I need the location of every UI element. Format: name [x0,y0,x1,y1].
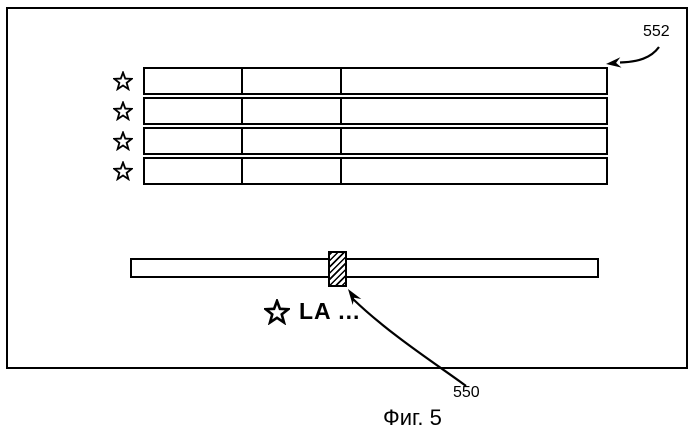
star-icon [113,101,133,121]
star-icon [113,161,133,181]
table-cell[interactable] [243,159,342,183]
ref-label-550: 550 [453,385,480,401]
table-cell[interactable] [243,99,342,123]
row-favorite-star[interactable] [107,67,139,95]
table-cell[interactable] [243,69,342,93]
table-cell[interactable] [145,129,243,153]
star-icon [264,299,290,325]
now-playing-label: LA ... [264,298,360,325]
table-cell[interactable] [342,99,606,123]
figure-5-patent-drawing: LA ... 552 550 Фиг. 5 [0,0,698,438]
favorites-star-column [107,67,139,185]
ref-label-552: 552 [643,24,670,40]
star-icon [113,131,133,151]
table-cell[interactable] [145,69,243,93]
table-cell[interactable] [342,69,606,93]
now-playing-text: LA ... [299,298,360,325]
table-row[interactable] [143,67,608,95]
table-cell[interactable] [145,159,243,183]
table-cell[interactable] [243,129,342,153]
media-list-table[interactable] [143,67,608,185]
row-favorite-star[interactable] [107,157,139,185]
table-row[interactable] [143,127,608,155]
row-favorite-star[interactable] [107,97,139,125]
table-row[interactable] [143,97,608,125]
row-favorite-star[interactable] [107,127,139,155]
table-cell[interactable] [145,99,243,123]
star-icon [113,71,133,91]
slider-track[interactable] [130,258,599,278]
figure-caption: Фиг. 5 [383,405,442,431]
table-cell[interactable] [342,159,606,183]
table-cell[interactable] [342,129,606,153]
table-row[interactable] [143,157,608,185]
slider-handle[interactable] [328,251,347,287]
